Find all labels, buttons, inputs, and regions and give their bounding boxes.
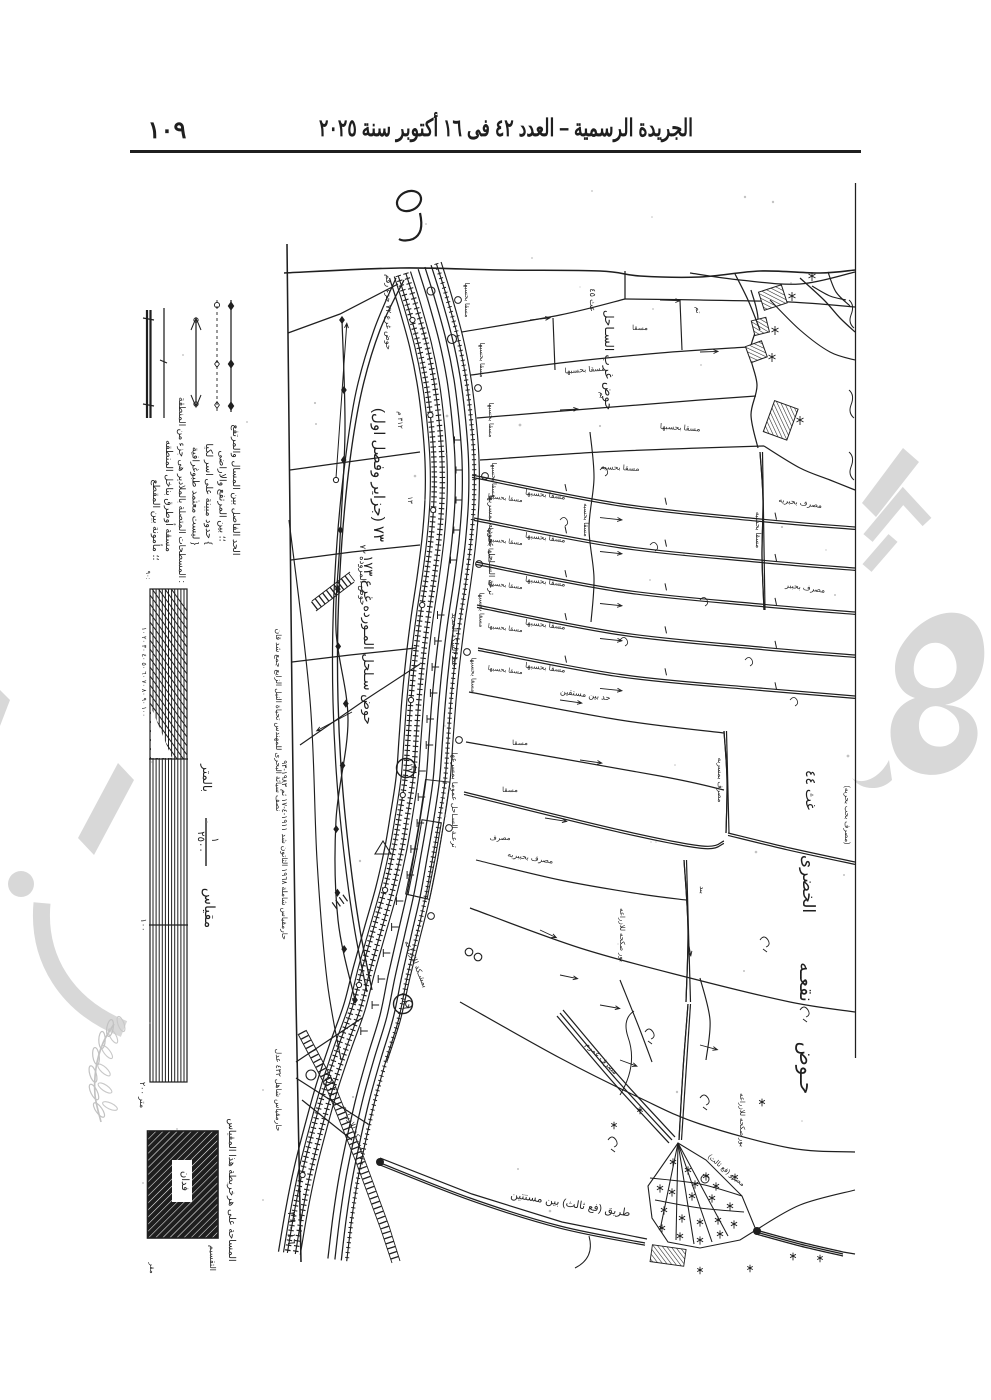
svg-text:مسقة أوطرق بناخل المنطقه: مسقة أوطرق بناخل المنطقه [163,440,176,552]
svg-text:مسقا بحسبه: مسقا بحسبه [582,503,590,537]
svg-text:١٠٠ ٩٠ ٨٠ ٧٠ ٦٠ ٥٠ ٤٠ ٣٠ ٢٠ ١٠: ١٠٠ ٩٠ ٨٠ ٧٠ ٦٠ ٥٠ ٤٠ ٣٠ ٢٠ ١٠ [140,627,147,717]
svg-text:حوض غرع ٧٢ جزء رقم: حوض غرع ٧٢ جزء رقم [384,274,393,350]
svg-text:مسقا بحسبها: مسقا بحسبها [470,657,478,693]
svg-text:الخضرى: الخضرى [798,855,818,913]
svg-text:١٠٩: ١٠٩ [148,117,187,144]
svg-text:ليست معتمد طبوغرافية }: ليست معتمد طبوغرافية } [190,447,201,545]
svg-text:مسقا: مسقا [512,739,528,747]
svg-text:نقعـه: نقعـه [795,962,816,1002]
svg-text:مسقا: مسقا [632,324,648,332]
svg-text:التقسيم: التقسيم [208,1245,217,1271]
svg-text:١٧: ١٧ [403,763,414,774]
svg-text:مقياس: مقياس [201,888,218,928]
svg-text:(مصرف بحب بحريه): (مصرف بحب بحريه) [843,786,850,845]
svg-text:مصرف: مصرف [490,835,511,842]
svg-text:بم: بم [598,392,605,399]
svg-text:٢٥٠٠: ٢٥٠٠ [195,831,206,852]
svg-text:٣١٢ م: ٣١٢ م [396,411,403,429]
svg-text:المساحة على هرخريطة هذا المقيا: المساحة على هرخريطة هذا المقياس [226,1118,237,1261]
svg-text:١٦ - ٣٦: ١٦ - ٣٦ [285,1211,297,1245]
svg-text:بالمتر: بالمتر [200,763,214,792]
svg-text:مقر: مقر [148,1261,155,1273]
svg-text:٩٠:: ٩٠: [144,571,151,580]
svg-text:المسطحات المتصلة بالملادير هى: المسطحات المتصلة بالملادير هى جزء من الم… [176,397,187,583]
svg-text:١: ١ [209,837,220,842]
svg-text:خط السكة الحديد: خط السكة الحديد [450,613,459,668]
svg-text:بور صكحه للازراعه: بور صكحه للازراعه [738,1093,746,1147]
svg-text:مسقا بحسبها: مسقا بحسبها [478,592,486,628]
svg-text:حـوض: حـوض [795,1042,817,1095]
svg-text:ترعـة السـاحل عموما بمسرعها: ترعـة السـاحل عموما بمسرعها [450,752,459,848]
svg-text:١٣: ١٣ [406,496,413,504]
svg-text:مسقا بحسبها: مسقا بحسبها [486,527,494,563]
svg-text:؛؛ بين المرتفع والاراضى: ؛؛ بين المرتفع والاراضى [217,450,228,541]
svg-text:غث ٤٤: غث ٤٤ [803,770,819,810]
svg-text:١٠٠: ١٠٠ [139,919,148,932]
svg-text:فدان: فدان [179,1171,190,1191]
svg-text:تم: تم [694,307,701,314]
svg-text:١٦: ١٦ [400,999,411,1010]
svg-text:بىد: بىد [698,886,705,894]
svg-text:متر ٢٠٠: متر ٢٠٠ [138,1082,147,1108]
svg-text:مسقا: مسقا [502,786,518,794]
svg-text:حارمقياس شاملة ١٩٦٨ الثاتون شد: حارمقياس شاملة ١٩٦٨ الثاتون شد ١٩١١-٤-١٧… [280,760,289,940]
svg-text:مسقا بحسبها: مسقا بحسبها [487,402,495,438]
svg-text:مصرف بمسربه: مصرف بمسربه [716,758,723,803]
svg-text:الجريدة الرسمية – العدد ٤٢ فى: الجريدة الرسمية – العدد ٤٢ فى ١٦ أكتوبر … [319,110,693,143]
svg-text:حارمقياس شاهل ٤٣٢ عدل: حارمقياس شاهل ٤٣٢ عدل [274,1049,283,1132]
svg-text:بور صكحه للازراعه: بور صكحه للازراعه [618,908,626,962]
svg-text:حدود مبينة على اسر لكيا {: حدود مبينة على اسر لكيا { [203,443,214,544]
svg-text:مسقا بحسبه: مسقا بحسبه [754,512,762,548]
svg-text:مسقا بحسبها: مسقا بحسبها [463,282,471,318]
svg-text:مسقا بحسبها: مسقا بحسبها [478,342,486,378]
svg-text:؛؛ مأمونة بين المقطع: ؛؛ مأمونة بين المقطع [150,479,163,560]
svg-text:(جزاير وفصل اول) ٧٣: (جزاير وفصل اول) ٧٣ [370,408,387,542]
svg-text:حوض المروده ٧٢: حوض المروده ٧٢ [357,545,368,606]
svg-text:الحد الفاصل بين المسال والمرتف: الحد الفاصل بين المسال والمرتفع [230,424,241,555]
svg-text:عث ٤٥: عث ٤٥ [588,288,597,311]
